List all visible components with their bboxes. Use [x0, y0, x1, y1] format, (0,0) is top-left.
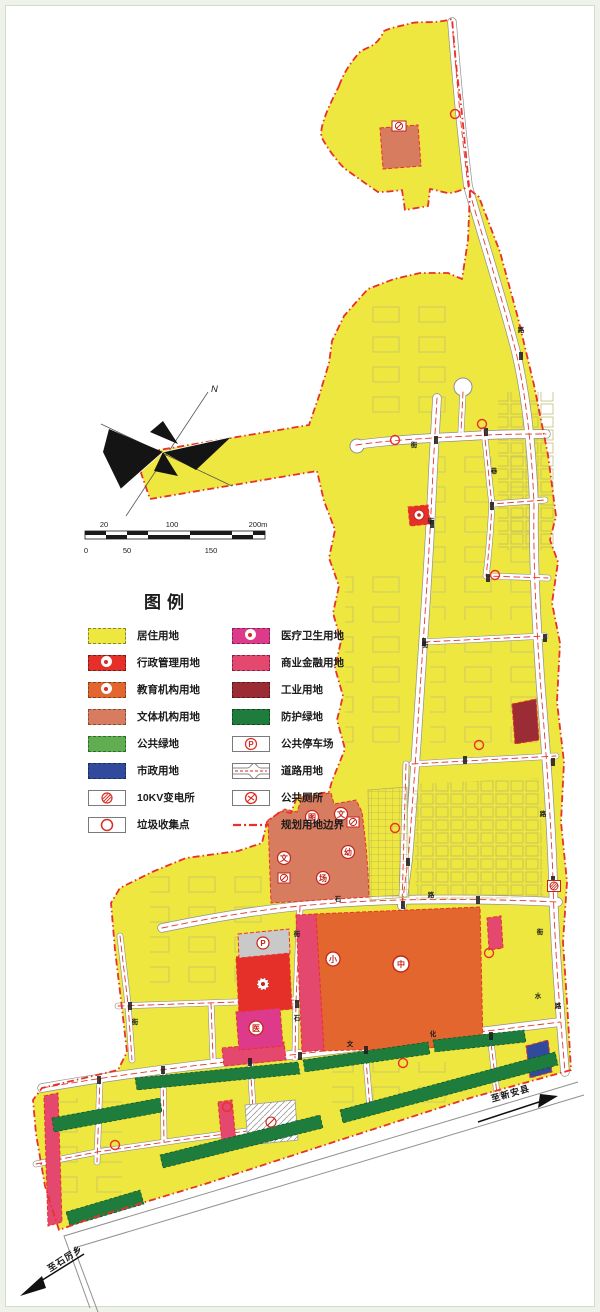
legend-label: 商业金融用地 — [281, 655, 372, 670]
substation-icon — [89, 791, 125, 805]
residential-swatch — [88, 628, 126, 644]
substation-icon — [548, 881, 561, 892]
svg-text:P: P — [260, 939, 266, 948]
industrial-swatch — [232, 682, 270, 698]
legend-label: 工业用地 — [281, 682, 372, 697]
plan-map-page: 中 小 医 图 文 幼 文 — [0, 0, 600, 1312]
education-block — [314, 907, 483, 1051]
svg-text:P: P — [248, 740, 254, 749]
primary-school-icon: 小 — [326, 952, 340, 966]
svg-text:街: 街 — [421, 640, 429, 649]
culture-sports-swatch — [88, 709, 126, 725]
svg-text:20: 20 — [100, 520, 108, 529]
legend-label: 医疗卫生用地 — [281, 628, 372, 643]
svg-text:石: 石 — [293, 1014, 301, 1022]
middle-school-icon: 中 — [393, 956, 409, 972]
svg-text:巷: 巷 — [490, 466, 498, 475]
toilet-icon — [278, 873, 290, 883]
administration-icon — [258, 979, 269, 990]
svg-text:文: 文 — [280, 853, 289, 863]
svg-text:水: 水 — [535, 991, 542, 1000]
svg-text:场: 场 — [319, 873, 327, 883]
svg-text:幼: 幼 — [344, 847, 352, 857]
education-swatch — [88, 682, 126, 698]
legend-label: 防护绿地 — [281, 709, 372, 724]
commercial-swatch — [232, 655, 270, 671]
administration-swatch — [88, 655, 126, 671]
svg-text:50: 50 — [123, 546, 131, 555]
industrial-block — [512, 699, 539, 744]
administration-icon-small — [414, 510, 424, 520]
legend-label: 文体机构用地 — [137, 709, 223, 724]
gridded-parcels — [368, 787, 409, 900]
circle-dot-icon — [101, 683, 112, 694]
toilet-swatch — [232, 790, 270, 806]
legend-label: 公共停车场 — [281, 736, 372, 751]
sports-field-icon: 场 — [317, 872, 330, 885]
municipal-swatch — [88, 763, 126, 779]
svg-text:街: 街 — [410, 440, 418, 449]
svg-text:文: 文 — [346, 1039, 354, 1048]
svg-text:石: 石 — [334, 895, 342, 903]
legend-label: 公共绿地 — [137, 736, 223, 751]
north-label: N — [211, 384, 218, 395]
svg-text:中: 中 — [397, 959, 405, 969]
legend-label: 居住用地 — [137, 628, 223, 643]
public-green-swatch — [88, 736, 126, 752]
legend-label: 10KV变电所 — [137, 790, 223, 805]
substation-swatch — [88, 790, 126, 806]
garbage-swatch — [88, 817, 126, 833]
circle-dot-icon — [245, 629, 256, 640]
protective-green-swatch — [232, 709, 270, 725]
gridded-parcels-east — [414, 778, 543, 901]
svg-text:路: 路 — [428, 890, 435, 899]
legend-label: 规划用地边界 — [281, 817, 372, 832]
svg-text:0: 0 — [84, 546, 88, 555]
parking-icon: P — [257, 937, 269, 949]
scale-bar: 20 100 200m 0 50 150 — [84, 520, 267, 555]
legend-label: 道路用地 — [281, 763, 372, 778]
legend-title: 图例 — [62, 588, 272, 613]
svg-text:至石厉乡: 至石厉乡 — [46, 1243, 85, 1273]
legend-label: 教育机构用地 — [137, 682, 223, 697]
legend-label: 市政用地 — [137, 763, 223, 778]
toilet-icon — [392, 121, 406, 131]
svg-text:街: 街 — [131, 1017, 139, 1026]
legend-label: 公共厕所 — [281, 790, 372, 805]
svg-text:街: 街 — [536, 927, 544, 936]
culture-sports-block-north — [380, 125, 421, 169]
svg-text:化: 化 — [430, 1029, 437, 1038]
toilet-icon — [266, 1117, 276, 1127]
circle-dot-icon — [101, 656, 112, 667]
hospital-icon: 医 — [249, 1021, 263, 1035]
svg-text:路: 路 — [518, 325, 525, 334]
svg-text:街: 街 — [293, 929, 301, 938]
legend-label: 行政管理用地 — [137, 655, 223, 670]
boundary-line-icon — [232, 817, 270, 833]
svg-text:路: 路 — [540, 809, 547, 818]
svg-text:200m: 200m — [249, 520, 268, 529]
svg-text:小: 小 — [328, 954, 337, 964]
kindergarten-icon: 幼 — [342, 846, 355, 859]
svg-text:路: 路 — [555, 1001, 562, 1010]
parking-swatch: P — [232, 736, 270, 752]
road-pattern-icon — [233, 764, 269, 778]
direction-bottom-left: 至石厉乡 — [20, 1243, 85, 1296]
commercial-strip — [487, 916, 503, 950]
svg-text:100: 100 — [166, 520, 179, 529]
toilet-icon — [233, 791, 269, 805]
legend: 图例 居住用地 医疗卫生用地 行政管理用地 商业金融用地 教育机构用地 工业用地… — [62, 588, 372, 838]
parking-p-icon: P — [233, 737, 269, 751]
legend-label: 垃圾收集点 — [137, 817, 223, 832]
boundary-swatch — [232, 817, 270, 833]
medical-swatch — [232, 628, 270, 644]
svg-text:150: 150 — [205, 546, 218, 555]
culture-icon-2: 文 — [278, 852, 291, 865]
svg-text:街: 街 — [427, 516, 435, 525]
garbage-circle-icon — [89, 818, 125, 832]
road-swatch — [232, 763, 270, 779]
svg-text:医: 医 — [252, 1024, 260, 1033]
